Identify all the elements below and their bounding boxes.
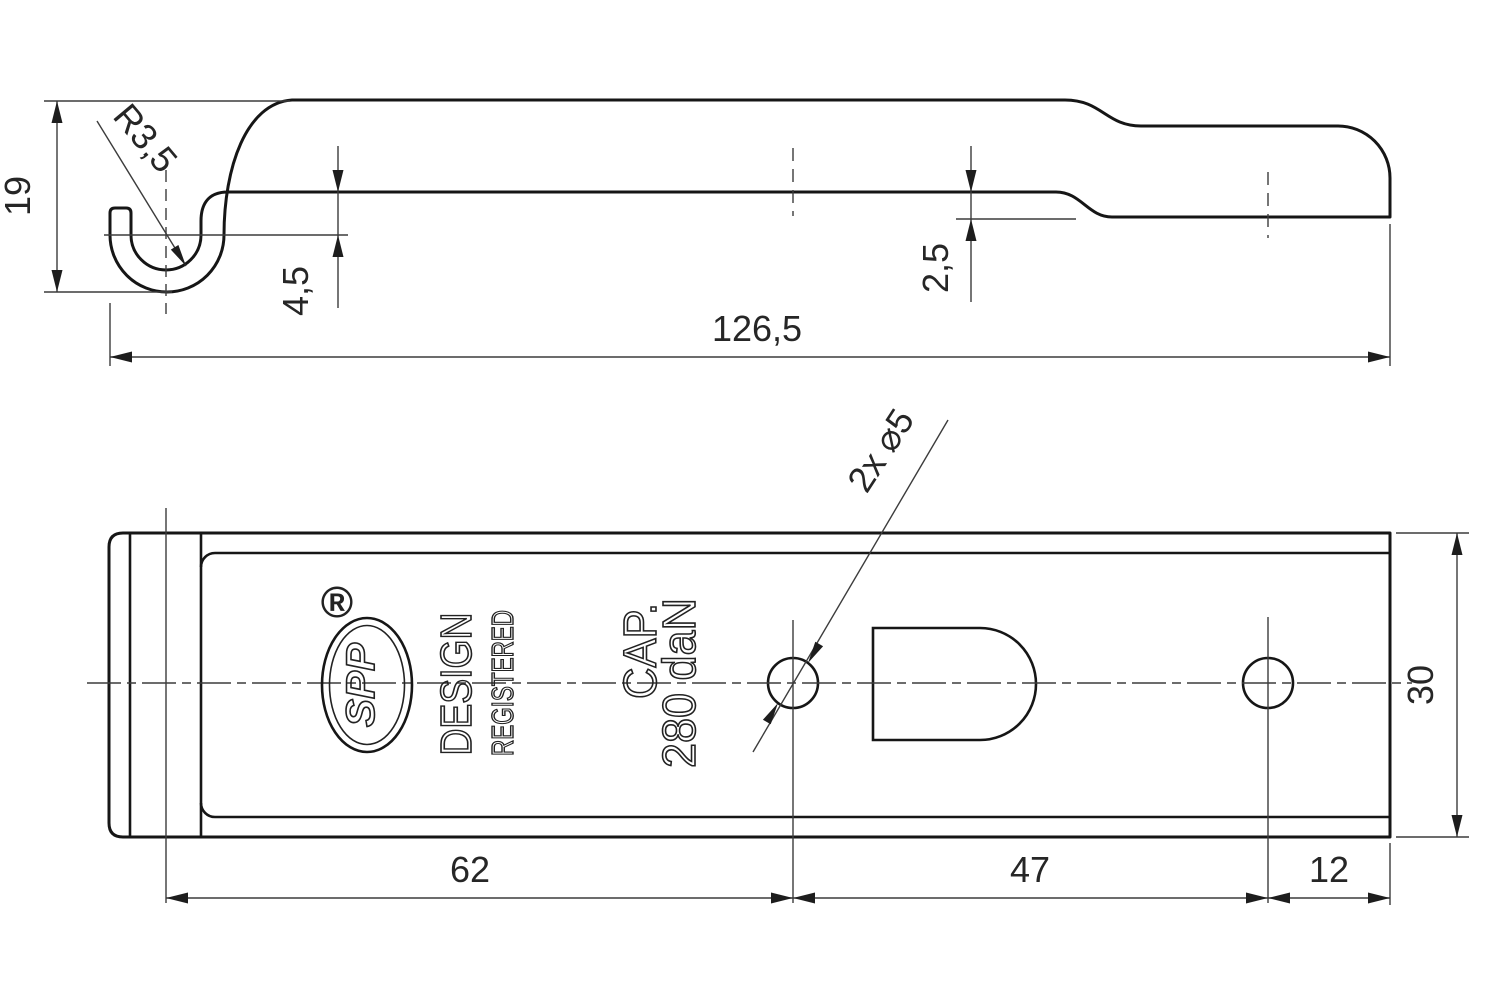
design-text: DESIGN [432,613,481,756]
dim-4-5-text: 4,5 [275,266,316,316]
stamped-markings: ® SPP DESIGN REGISTERED CAP. 280 daN [321,578,705,768]
dim-30: 30 [1396,533,1469,837]
registered-trademark-icon: ® [321,578,353,627]
side-view: 19 R3,5 4,5 2,5 [0,96,1390,366]
dim-2-5: 2,5 [915,146,1076,302]
dim-126-5-text: 126,5 [712,308,802,349]
dim-12-text: 12 [1309,849,1349,890]
spp-logo-text: SPP [339,643,383,727]
plan-view-outline [109,533,1390,837]
d-slot [873,628,1036,740]
registered-text: REGISTERED [485,610,520,756]
dim-62-text: 62 [450,849,490,890]
technical-drawing: 19 R3,5 4,5 2,5 [0,0,1500,1000]
dim-47-text: 47 [1010,849,1050,890]
dim-radius-text: R3,5 [105,96,185,181]
dim-4-5: 4,5 [275,146,344,316]
capacity-value-text: 280 daN [653,598,705,768]
dim-30-text: 30 [1400,665,1441,705]
side-view-outline [110,100,1390,292]
dim-19-text: 19 [0,176,38,216]
embossed-panel-top [201,553,1390,567]
dim-2-5-text: 2,5 [915,243,956,293]
dim-holes-callout: 2x ⌀5 [753,401,948,752]
plan-view: 2x ⌀5 62 47 12 30 ® [87,401,1469,905]
dim-bottom-chain: 62 47 12 [166,849,1390,904]
embossed-panel-bottom [201,803,1390,817]
